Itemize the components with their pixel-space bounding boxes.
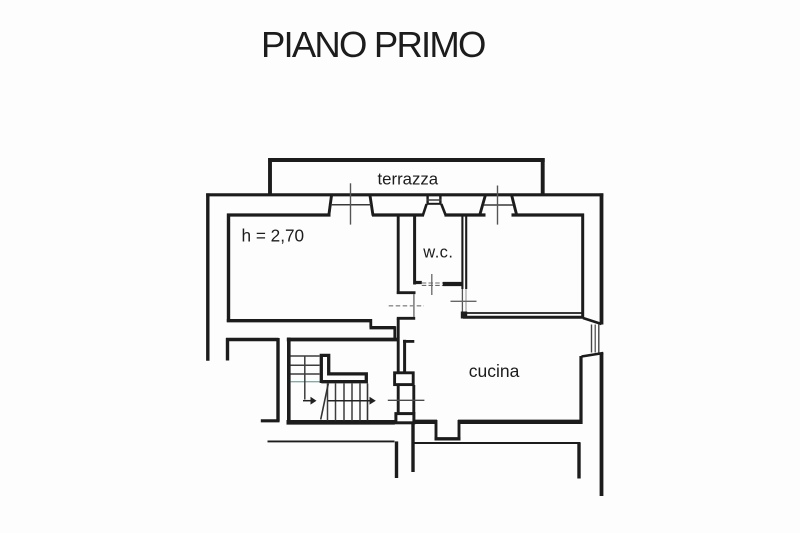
svg-text:cucina: cucina	[469, 361, 520, 381]
svg-text:h = 2,70: h = 2,70	[242, 226, 305, 246]
svg-text:w.c.: w.c.	[422, 243, 453, 261]
svg-text:terrazza: terrazza	[378, 170, 439, 189]
svg-text:PIANO PRIMO: PIANO PRIMO	[261, 24, 485, 65]
